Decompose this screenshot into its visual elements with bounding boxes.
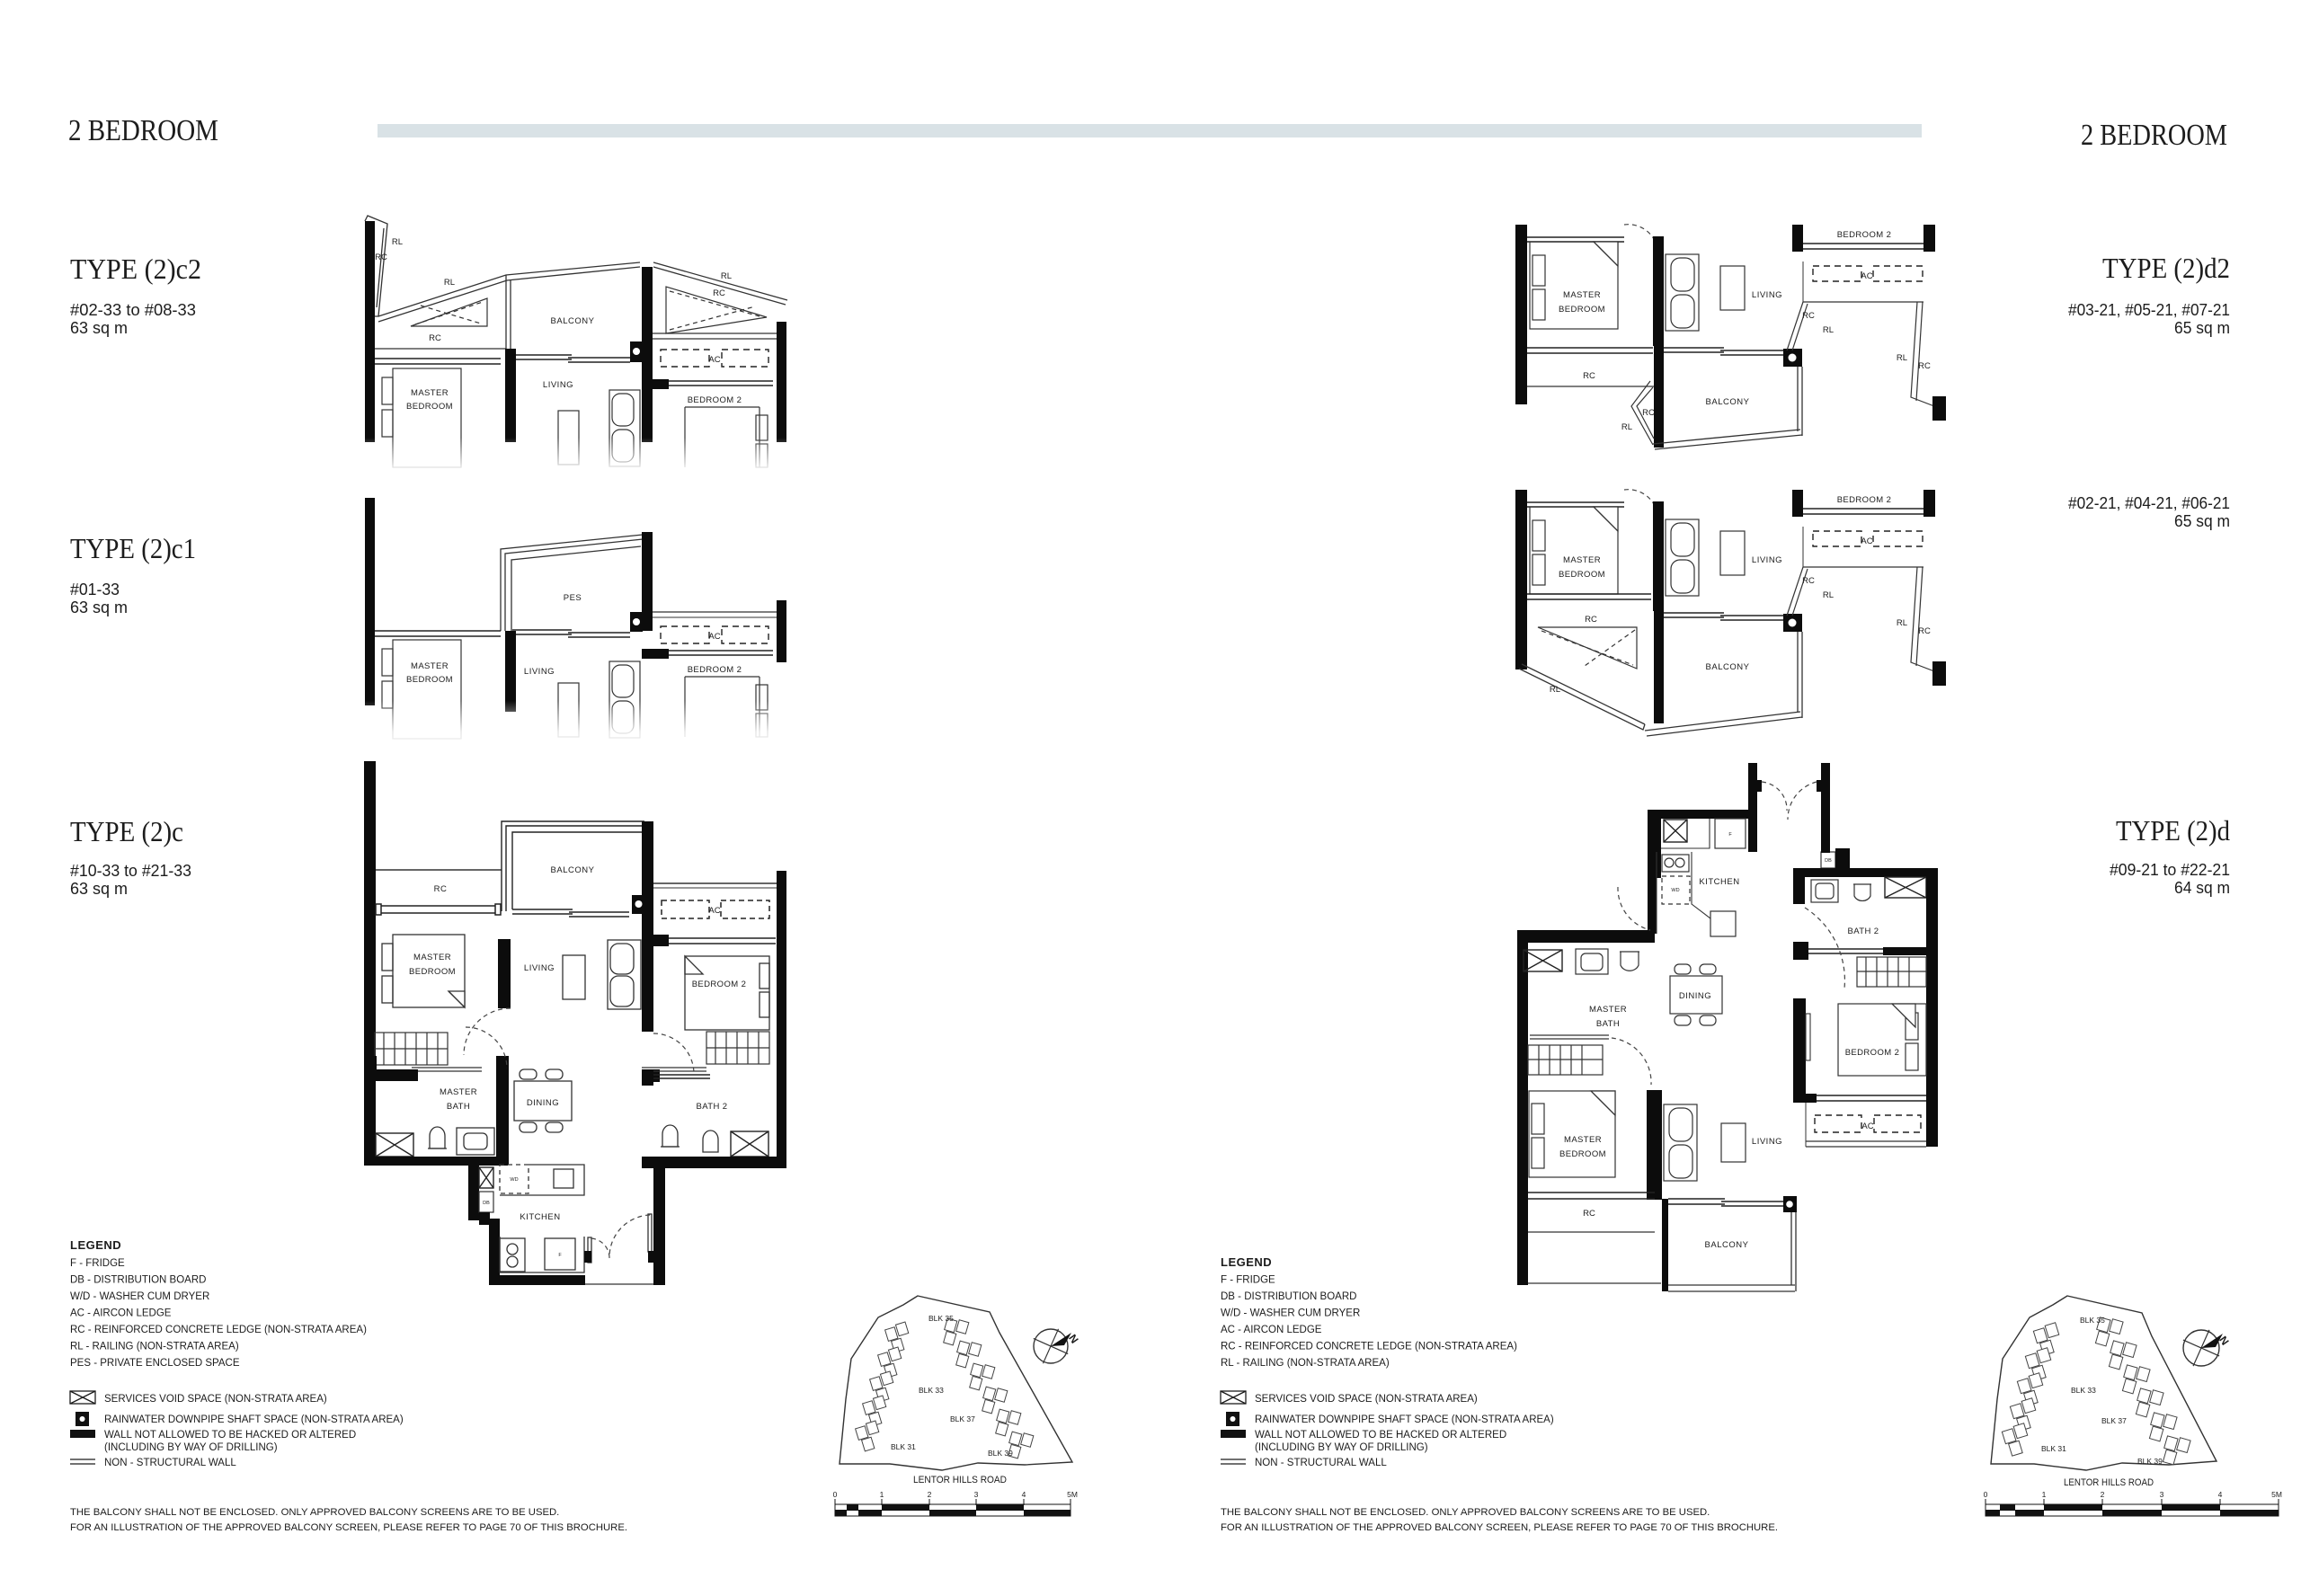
svg-text:LIVING: LIVING [1752,555,1782,565]
svg-text:RC: RC [1918,626,1931,636]
svg-text:DINING: DINING [1679,991,1711,1001]
svg-text:W/D - WASHER CUM DRYER: W/D - WASHER CUM DRYER [1221,1308,1360,1319]
svg-text:RL: RL [392,237,403,247]
svg-text:BLK 39: BLK 39 [988,1449,1013,1458]
svg-text:THE BALCONY SHALL NOT BE ENCLO: THE BALCONY SHALL NOT BE ENCLOSED. ONLY … [1221,1507,1710,1518]
svg-text:BEDROOM 2: BEDROOM 2 [1837,495,1892,505]
svg-text:LEGEND: LEGEND [70,1238,121,1252]
svg-text:RC: RC [434,884,448,894]
svg-text:SERVICES VOID SPACE (NON-STRAT: SERVICES VOID SPACE (NON-STRATA AREA) [104,1394,327,1405]
svg-text:BEDROOM 2: BEDROOM 2 [692,980,747,989]
svg-text:AC: AC [708,906,720,916]
svg-text:PES: PES [564,593,582,603]
svg-text:RC: RC [429,333,441,343]
svg-text:RC: RC [1802,311,1815,321]
svg-text:BLK 35: BLK 35 [928,1314,954,1323]
svg-text:RC: RC [1642,408,1655,418]
svg-text:SERVICES VOID SPACE (NON-STRAT: SERVICES VOID SPACE (NON-STRATA AREA) [1255,1394,1478,1405]
svg-text:RAINWATER DOWNPIPE SHAFT SPACE: RAINWATER DOWNPIPE SHAFT SPACE (NON-STRA… [1255,1414,1554,1425]
svg-text:BEDROOM: BEDROOM [406,675,453,685]
svg-text:BALCONY: BALCONY [1706,397,1750,407]
svg-text:NON - STRUCTURAL WALL: NON - STRUCTURAL WALL [1255,1458,1387,1468]
svg-text:0: 0 [833,1490,838,1499]
svg-text:TYPE (2)c2: TYPE (2)c2 [70,253,201,285]
svg-text:4: 4 [1022,1490,1026,1499]
svg-text:KITCHEN: KITCHEN [520,1212,560,1222]
svg-text:MASTER: MASTER [1589,1005,1627,1015]
svg-text:DB - DISTRIBUTION BOARD: DB - DISTRIBUTION BOARD [70,1275,206,1286]
svg-text:TYPE (2)d2: TYPE (2)d2 [2102,252,2230,284]
svg-text:LIVING: LIVING [1752,290,1782,300]
svg-text:WD: WD [510,1177,518,1183]
svg-text:RC: RC [1583,1209,1595,1219]
svg-text:BEDROOM: BEDROOM [409,967,456,977]
svg-text:BLK 31: BLK 31 [2041,1444,2066,1453]
svg-text:LEGEND: LEGEND [1221,1255,1272,1269]
svg-text:63 sq m: 63 sq m [70,598,128,616]
svg-text:MASTER: MASTER [1563,555,1601,565]
svg-text:BLK 37: BLK 37 [2101,1416,2127,1425]
svg-text:#03-21, #05-21, #07-21: #03-21, #05-21, #07-21 [2068,301,2230,319]
svg-text:MASTER: MASTER [1563,290,1601,300]
svg-text:AC: AC [1861,536,1872,546]
svg-text:AC: AC [708,632,720,642]
svg-text:LENTOR HILLS ROAD: LENTOR HILLS ROAD [913,1475,1007,1485]
svg-text:65 sq m: 65 sq m [2174,512,2230,530]
svg-text:NON - STRUCTURAL WALL: NON - STRUCTURAL WALL [104,1458,236,1468]
svg-text:RL: RL [1550,685,1560,695]
svg-text:RC: RC [1585,615,1597,625]
svg-text:DB: DB [483,1201,490,1206]
svg-text:MASTER: MASTER [440,1087,477,1097]
svg-text:(INCLUDING BY WAY OF DRILLING): (INCLUDING BY WAY OF DRILLING) [1255,1442,1428,1453]
svg-text:2 BEDROOM: 2 BEDROOM [68,114,218,147]
svg-text:BALCONY: BALCONY [1705,1240,1749,1250]
svg-text:DB: DB [1825,858,1832,864]
svg-text:RC - REINFORCED CONCRETE LEDGE: RC - REINFORCED CONCRETE LEDGE (NON-STRA… [1221,1342,1517,1352]
svg-text:BLK 31: BLK 31 [891,1442,916,1451]
svg-text:#02-21, #04-21, #06-21: #02-21, #04-21, #06-21 [2068,494,2230,512]
svg-text:AC - AIRCON LEDGE: AC - AIRCON LEDGE [1221,1325,1322,1335]
svg-text:(INCLUDING BY WAY OF DRILLING): (INCLUDING BY WAY OF DRILLING) [104,1442,278,1453]
svg-text:#10-33 to #21-33: #10-33 to #21-33 [70,862,191,880]
svg-text:63 sq m: 63 sq m [70,880,128,898]
svg-text:RL - RAILING (NON-STRATA AREA): RL - RAILING (NON-STRATA AREA) [70,1342,239,1352]
svg-text:RL: RL [444,278,455,288]
svg-text:RC: RC [375,253,387,262]
svg-text:WD: WD [1671,888,1679,893]
svg-text:F - FRIDGE: F - FRIDGE [1221,1275,1275,1286]
svg-text:THE BALCONY SHALL NOT BE ENCLO: THE BALCONY SHALL NOT BE ENCLOSED. ONLY … [70,1507,559,1518]
svg-text:TYPE (2)c1: TYPE (2)c1 [70,532,196,564]
svg-text:BEDROOM: BEDROOM [406,402,453,412]
svg-text:#02-33 to #08-33: #02-33 to #08-33 [70,301,196,319]
svg-text:BLK 37: BLK 37 [950,1414,975,1423]
svg-text:WALL NOT ALLOWED TO BE HACKED: WALL NOT ALLOWED TO BE HACKED OR ALTERED [104,1430,356,1441]
svg-text:BEDROOM 2: BEDROOM 2 [688,665,742,675]
svg-text:BEDROOM: BEDROOM [1559,1149,1606,1159]
svg-text:TYPE (2)c: TYPE (2)c [70,815,183,847]
svg-text:3: 3 [2160,1490,2164,1499]
svg-text:MASTER: MASTER [1564,1135,1602,1145]
svg-text:DB - DISTRIBUTION BOARD: DB - DISTRIBUTION BOARD [1221,1291,1356,1302]
svg-text:LIVING: LIVING [524,667,555,677]
svg-text:BATH: BATH [1596,1019,1620,1029]
svg-text:64 sq m: 64 sq m [2174,879,2230,897]
svg-text:BEDROOM: BEDROOM [1559,570,1605,580]
svg-text:BEDROOM: BEDROOM [1559,305,1605,315]
svg-text:BATH 2: BATH 2 [697,1102,728,1112]
svg-text:0: 0 [1984,1490,1988,1499]
svg-text:RC: RC [1802,576,1815,586]
svg-text:RL: RL [1897,353,1907,363]
svg-text:BALCONY: BALCONY [1706,662,1750,672]
svg-text:RL: RL [1823,325,1834,335]
svg-text:RL: RL [1621,422,1632,432]
svg-text:3: 3 [974,1490,979,1499]
svg-text:63 sq m: 63 sq m [70,319,128,337]
svg-text:TYPE (2)d: TYPE (2)d [2116,814,2230,847]
svg-text:AC - AIRCON LEDGE: AC - AIRCON LEDGE [70,1308,172,1319]
svg-text:RC: RC [1918,361,1931,371]
svg-text:1: 1 [2042,1490,2047,1499]
svg-text:BEDROOM 2: BEDROOM 2 [688,395,742,405]
svg-text:4: 4 [2218,1490,2223,1499]
svg-text:RC - REINFORCED CONCRETE LEDGE: RC - REINFORCED CONCRETE LEDGE (NON-STRA… [70,1325,367,1335]
svg-text:LIVING: LIVING [543,380,573,390]
svg-text:KITCHEN: KITCHEN [1699,877,1739,887]
svg-text:BLK 35: BLK 35 [2080,1316,2105,1325]
svg-text:BLK 33: BLK 33 [919,1386,944,1395]
svg-text:AC: AC [708,355,720,365]
svg-text:AC: AC [1861,271,1872,281]
svg-text:LENTOR HILLS ROAD: LENTOR HILLS ROAD [2064,1477,2154,1488]
svg-text:RC: RC [1583,371,1595,381]
svg-text:BLK 39: BLK 39 [2137,1457,2163,1466]
svg-text:RL: RL [1823,590,1834,600]
svg-text:BATH: BATH [447,1102,470,1112]
svg-text:LIVING: LIVING [524,963,555,973]
svg-text:RL - RAILING (NON-STRATA AREA): RL - RAILING (NON-STRATA AREA) [1221,1358,1390,1369]
svg-text:MASTER: MASTER [413,953,451,962]
svg-text:BALCONY: BALCONY [551,316,595,326]
svg-text:2: 2 [2101,1490,2105,1499]
svg-text:MASTER: MASTER [411,388,449,398]
svg-text:RL: RL [1897,618,1907,628]
svg-text:RC: RC [713,288,725,298]
svg-text:5M: 5M [1067,1490,1078,1499]
svg-text:5M: 5M [2271,1490,2282,1499]
svg-text:#01-33: #01-33 [70,581,120,598]
svg-text:BEDROOM 2: BEDROOM 2 [1837,230,1892,240]
svg-text:RAINWATER DOWNPIPE SHAFT SPACE: RAINWATER DOWNPIPE SHAFT SPACE (NON-STRA… [104,1414,404,1425]
svg-text:65 sq m: 65 sq m [2174,319,2230,337]
svg-text:BATH 2: BATH 2 [1848,927,1879,936]
svg-text:2 BEDROOM: 2 BEDROOM [2081,119,2227,152]
svg-text:MASTER: MASTER [411,661,449,671]
svg-text:DINING: DINING [527,1098,559,1108]
svg-text:RL: RL [721,271,732,281]
svg-text:#09-21 to #22-21: #09-21 to #22-21 [2110,861,2230,879]
svg-text:LIVING: LIVING [1752,1137,1782,1147]
svg-text:F - FRIDGE: F - FRIDGE [70,1258,125,1269]
svg-text:BEDROOM 2: BEDROOM 2 [1845,1048,1900,1058]
svg-text:AC: AC [1861,1122,1873,1131]
svg-text:PES - PRIVATE ENCLOSED SPACE: PES - PRIVATE ENCLOSED SPACE [70,1358,240,1369]
svg-text:BLK 33: BLK 33 [2071,1386,2096,1395]
svg-text:1: 1 [880,1490,884,1499]
svg-text:WALL NOT ALLOWED TO BE HACKED: WALL NOT ALLOWED TO BE HACKED OR ALTERED [1255,1430,1506,1441]
svg-text:BALCONY: BALCONY [551,865,595,875]
svg-text:FOR AN ILLUSTRATION OF THE APP: FOR AN ILLUSTRATION OF THE APPROVED BALC… [70,1522,627,1533]
svg-text:W/D - WASHER CUM DRYER: W/D - WASHER CUM DRYER [70,1291,209,1302]
svg-text:FOR AN ILLUSTRATION OF THE APP: FOR AN ILLUSTRATION OF THE APPROVED BALC… [1221,1522,1778,1533]
svg-text:2: 2 [928,1490,932,1499]
